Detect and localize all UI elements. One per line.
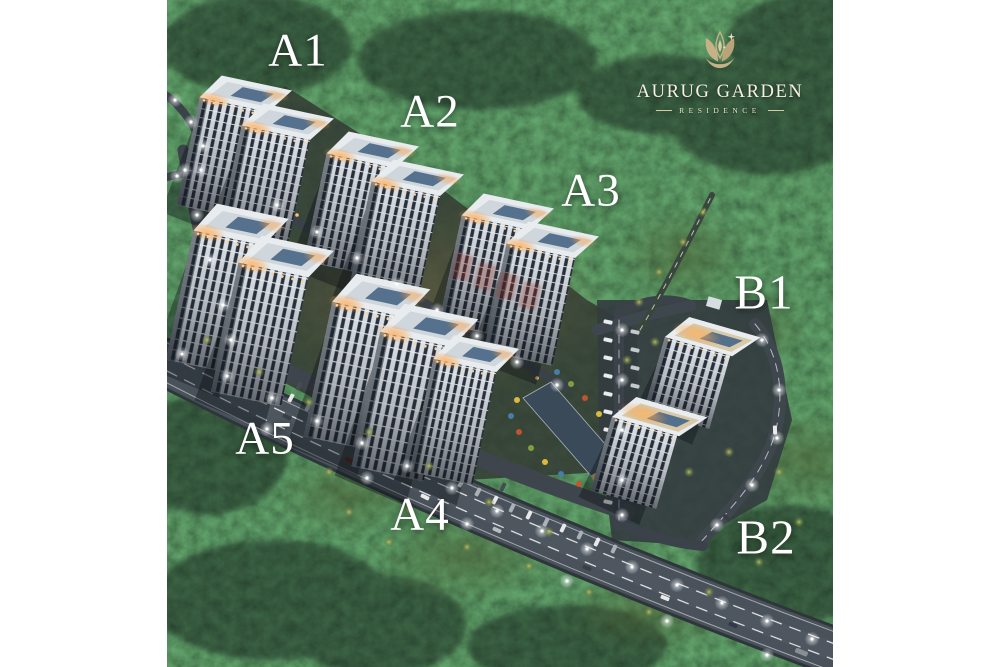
block-label-b2: B2	[736, 513, 795, 562]
block-label-a4: A4	[390, 492, 449, 539]
block-label-a1: A1	[268, 28, 327, 75]
block-label-b1: B1	[734, 268, 793, 317]
subtitle-text: RESIDENCE	[679, 106, 761, 115]
subtitle-right-rule	[768, 110, 784, 111]
gold-tulip-leaf-emblem-icon	[700, 26, 740, 78]
aerial-render-photo: A1 A2 A3 B1 A5 A4 B2 AURUG GARDEN RESI	[167, 0, 833, 667]
logo-title: AURUG GARDEN	[637, 82, 804, 103]
page: A1 A2 A3 B1 A5 A4 B2 AURUG GARDEN RESI	[0, 0, 1000, 667]
subtitle-left-rule	[656, 110, 672, 111]
block-label-a3: A3	[561, 168, 620, 215]
block-label-a5: A5	[235, 416, 294, 463]
block-label-a2: A2	[400, 89, 459, 136]
logo-subtitle: RESIDENCE	[656, 106, 784, 115]
logo: AURUG GARDEN RESIDENCE	[625, 26, 815, 115]
